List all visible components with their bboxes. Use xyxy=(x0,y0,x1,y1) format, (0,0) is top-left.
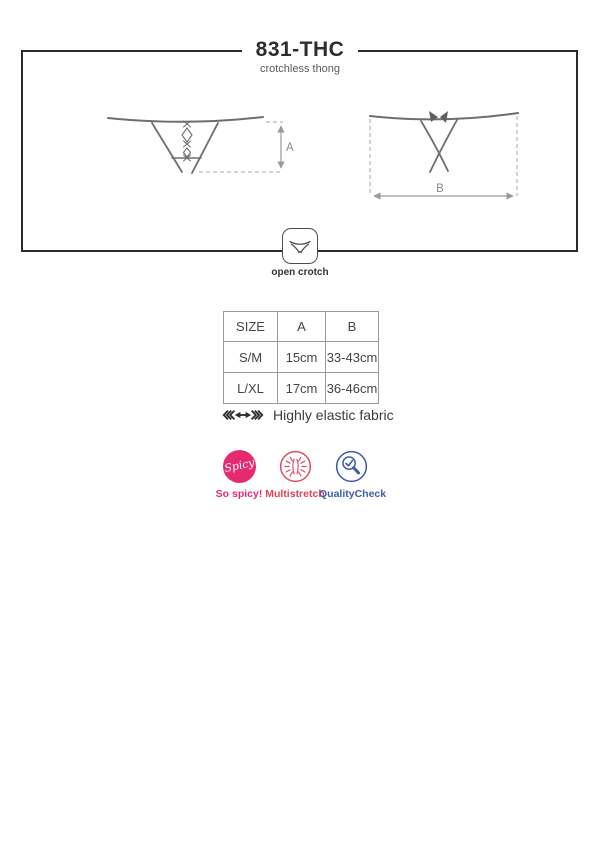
measure-b-cell: 36-46cm xyxy=(326,373,379,404)
size-cell: L/XL xyxy=(224,373,278,404)
garment-drawing: A B xyxy=(80,100,520,205)
thong-front-view xyxy=(108,117,263,173)
measure-a-label: A xyxy=(286,142,294,154)
bow-detail xyxy=(429,111,448,123)
panty-icon xyxy=(286,232,314,260)
stretch-arrow-icon xyxy=(220,408,266,422)
measure-a-cell: 17cm xyxy=(278,373,326,404)
size-table-header-a: A xyxy=(278,312,326,342)
spicy-icon-text: Spicy xyxy=(220,447,259,485)
fabric-note: Highly elastic fabric xyxy=(220,406,394,424)
size-table-header-size: SIZE xyxy=(224,312,278,342)
product-subtitle: crotchless thong xyxy=(0,63,600,75)
quality-check-label: QualityCheck xyxy=(319,488,383,500)
badge-spicy: Spicy So spicy! xyxy=(207,450,271,500)
size-table-header-b: B xyxy=(326,312,379,342)
open-crotch-icon xyxy=(282,228,318,264)
table-row: L/XL 17cm 36-46cm xyxy=(224,373,379,404)
measure-b: B xyxy=(370,116,517,196)
measure-a-cell: 15cm xyxy=(278,342,326,373)
spicy-label: So spicy! xyxy=(207,488,271,500)
header: 831-THC xyxy=(0,37,600,62)
badge-multistretch: Multistretch xyxy=(263,450,327,500)
open-crotch-label: open crotch xyxy=(0,267,600,278)
lacing-detail xyxy=(182,121,192,161)
quality-check-icon xyxy=(335,450,368,483)
measure-b-cell: 33-43cm xyxy=(326,342,379,373)
size-table: SIZE A B S/M 15cm 33-43cm L/XL 17cm 36-4… xyxy=(223,311,379,404)
multistretch-icon xyxy=(279,450,312,483)
measure-a: A xyxy=(199,122,294,172)
fabric-note-text: Highly elastic fabric xyxy=(273,407,394,423)
product-code-title: 831-THC xyxy=(242,37,359,62)
measure-b-label: B xyxy=(436,183,444,195)
multistretch-label: Multistretch xyxy=(263,488,327,500)
size-cell: S/M xyxy=(224,342,278,373)
thong-back-view xyxy=(370,111,518,172)
spicy-icon: Spicy xyxy=(223,450,256,483)
size-table-header-row: SIZE A B xyxy=(224,312,379,342)
badge-quality-check: QualityCheck xyxy=(319,450,383,500)
table-row: S/M 15cm 33-43cm xyxy=(224,342,379,373)
